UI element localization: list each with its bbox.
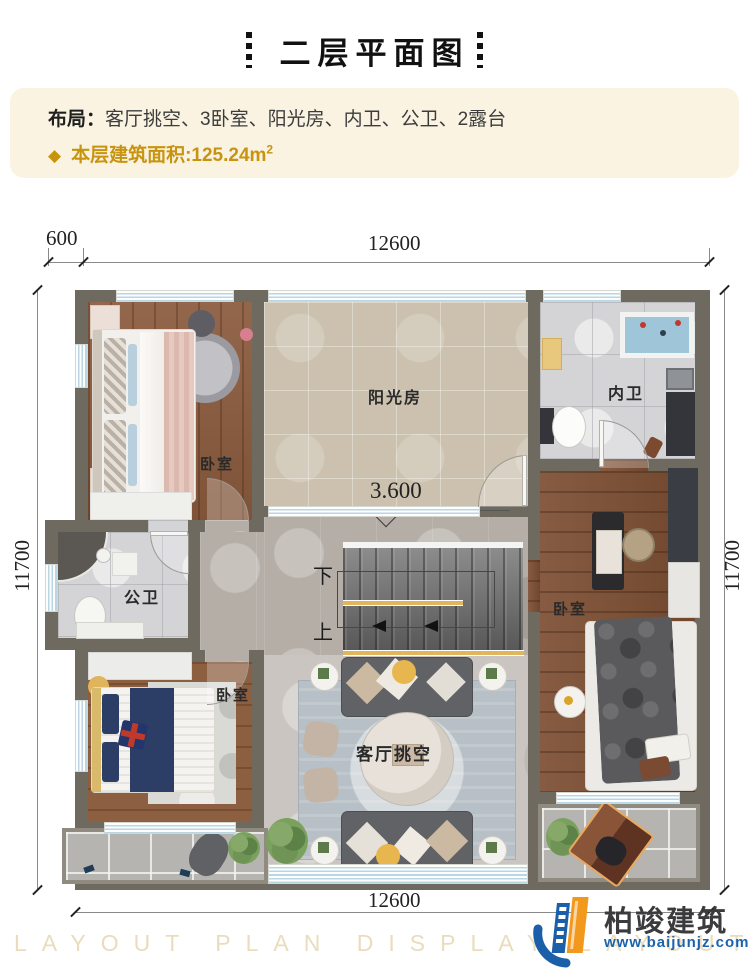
pillow	[104, 338, 126, 414]
label-living-void: 客厅挑空	[356, 740, 432, 765]
toilet	[552, 406, 586, 448]
label-sunroom: 阳光房	[368, 384, 422, 408]
chair	[622, 528, 655, 562]
floorplan-page: 二层平面图 布局：客厅挑空、3卧室、阳光房、内卫、公卫、2露台 ◆本层建筑面积:…	[0, 0, 749, 973]
dim-right: 11700	[720, 540, 745, 592]
sofa-pillow-yellow	[392, 660, 416, 684]
bed-headboard	[92, 688, 101, 792]
lamp	[564, 696, 573, 705]
shelf	[542, 338, 562, 370]
bench	[90, 492, 192, 520]
layout-label: 布局：	[48, 109, 105, 130]
opening-bedroom-bl	[205, 650, 249, 662]
dim-line-left	[37, 290, 38, 890]
window	[116, 290, 234, 302]
opening-bedroom-right	[528, 560, 540, 612]
title-dash-right-icon	[477, 32, 483, 68]
stairs-up-label: 上	[313, 616, 335, 645]
window	[268, 290, 526, 302]
window	[75, 700, 88, 772]
info-panel: 布局：客厅挑空、3卧室、阳光房、内卫、公卫、2露台 ◆本层建筑面积:125.24…	[10, 88, 739, 178]
pillow-accent	[128, 344, 137, 406]
label-bedroom-top-left: 卧室	[200, 453, 234, 474]
shower-head	[96, 548, 111, 563]
dim-bottom: 12600	[368, 888, 421, 913]
pillow-accent	[128, 424, 137, 486]
window	[75, 344, 88, 388]
label-bedroom-bottom-left: 卧室	[216, 684, 250, 705]
stair-arrow-icon	[372, 620, 386, 632]
vanity	[666, 392, 695, 456]
area-line: ◆本层建筑面积:125.24m2	[48, 140, 273, 167]
diamond-bullet-icon: ◆	[48, 146, 61, 165]
window	[556, 792, 680, 804]
door-leaf	[599, 420, 604, 467]
opening-bedroom-tl	[205, 520, 249, 532]
label-bedroom-right: 卧室	[553, 598, 587, 619]
bed-headboard	[93, 330, 102, 502]
plant-small	[318, 842, 329, 853]
dim-line-top	[48, 262, 710, 263]
dim-left: 11700	[10, 540, 35, 592]
page-title: 二层平面图	[0, 28, 749, 73]
wardrobe	[88, 652, 192, 680]
area-label: 本层建筑面积:	[71, 145, 191, 166]
bathtub	[620, 312, 694, 358]
layout-line: 布局：客厅挑空、3卧室、阳光房、内卫、公卫、2露台	[48, 104, 506, 131]
bath-shelf	[112, 552, 138, 576]
pillow-navy	[102, 742, 119, 782]
stair-top-edge	[343, 542, 523, 548]
stair-rail	[343, 650, 524, 656]
vanity-counter	[76, 622, 144, 639]
stairs-down-label: 下	[313, 560, 335, 589]
door-leaf	[150, 531, 188, 536]
sink	[666, 368, 694, 390]
pillow	[104, 420, 126, 496]
plant-small	[318, 668, 329, 679]
window-living-large	[268, 864, 528, 884]
stair-walkline	[337, 571, 495, 628]
plant	[228, 832, 260, 864]
dim-top: 12600	[368, 231, 421, 256]
window-sunroom-inner	[268, 506, 480, 517]
door-leaf	[522, 455, 527, 506]
pouf	[302, 720, 340, 758]
pouf	[302, 766, 339, 803]
dim-offset: 600	[46, 226, 78, 251]
brand-site: www.baijunjz.com	[604, 934, 749, 951]
layout-value: 客厅挑空、3卧室、阳光房、内卫、公卫、2露台	[105, 109, 506, 130]
duvet	[140, 332, 166, 500]
stair-arrow-icon	[424, 620, 438, 632]
cabinet	[668, 562, 700, 618]
plant-small	[486, 668, 497, 679]
window	[104, 822, 236, 834]
wardrobe	[668, 468, 698, 562]
bathtub-decor	[675, 320, 681, 326]
corridor	[200, 532, 264, 650]
label-inner-bath: 内卫	[608, 380, 644, 404]
window	[45, 564, 58, 612]
brand-logo-icon	[528, 893, 600, 969]
pillow-navy	[102, 694, 119, 734]
area-value: 125.24m	[191, 145, 266, 166]
elevation-value: 3.600	[370, 478, 422, 504]
bathtub-decor	[660, 330, 666, 336]
area-sup: 2	[266, 143, 273, 157]
blanket-pink	[164, 332, 194, 500]
bathtub-decor	[640, 322, 646, 328]
window	[543, 290, 621, 302]
desk-papers	[596, 530, 622, 574]
plant	[266, 818, 308, 864]
label-public-bath: 公卫	[124, 584, 160, 608]
cushion	[240, 328, 253, 341]
plant-small	[486, 842, 497, 853]
